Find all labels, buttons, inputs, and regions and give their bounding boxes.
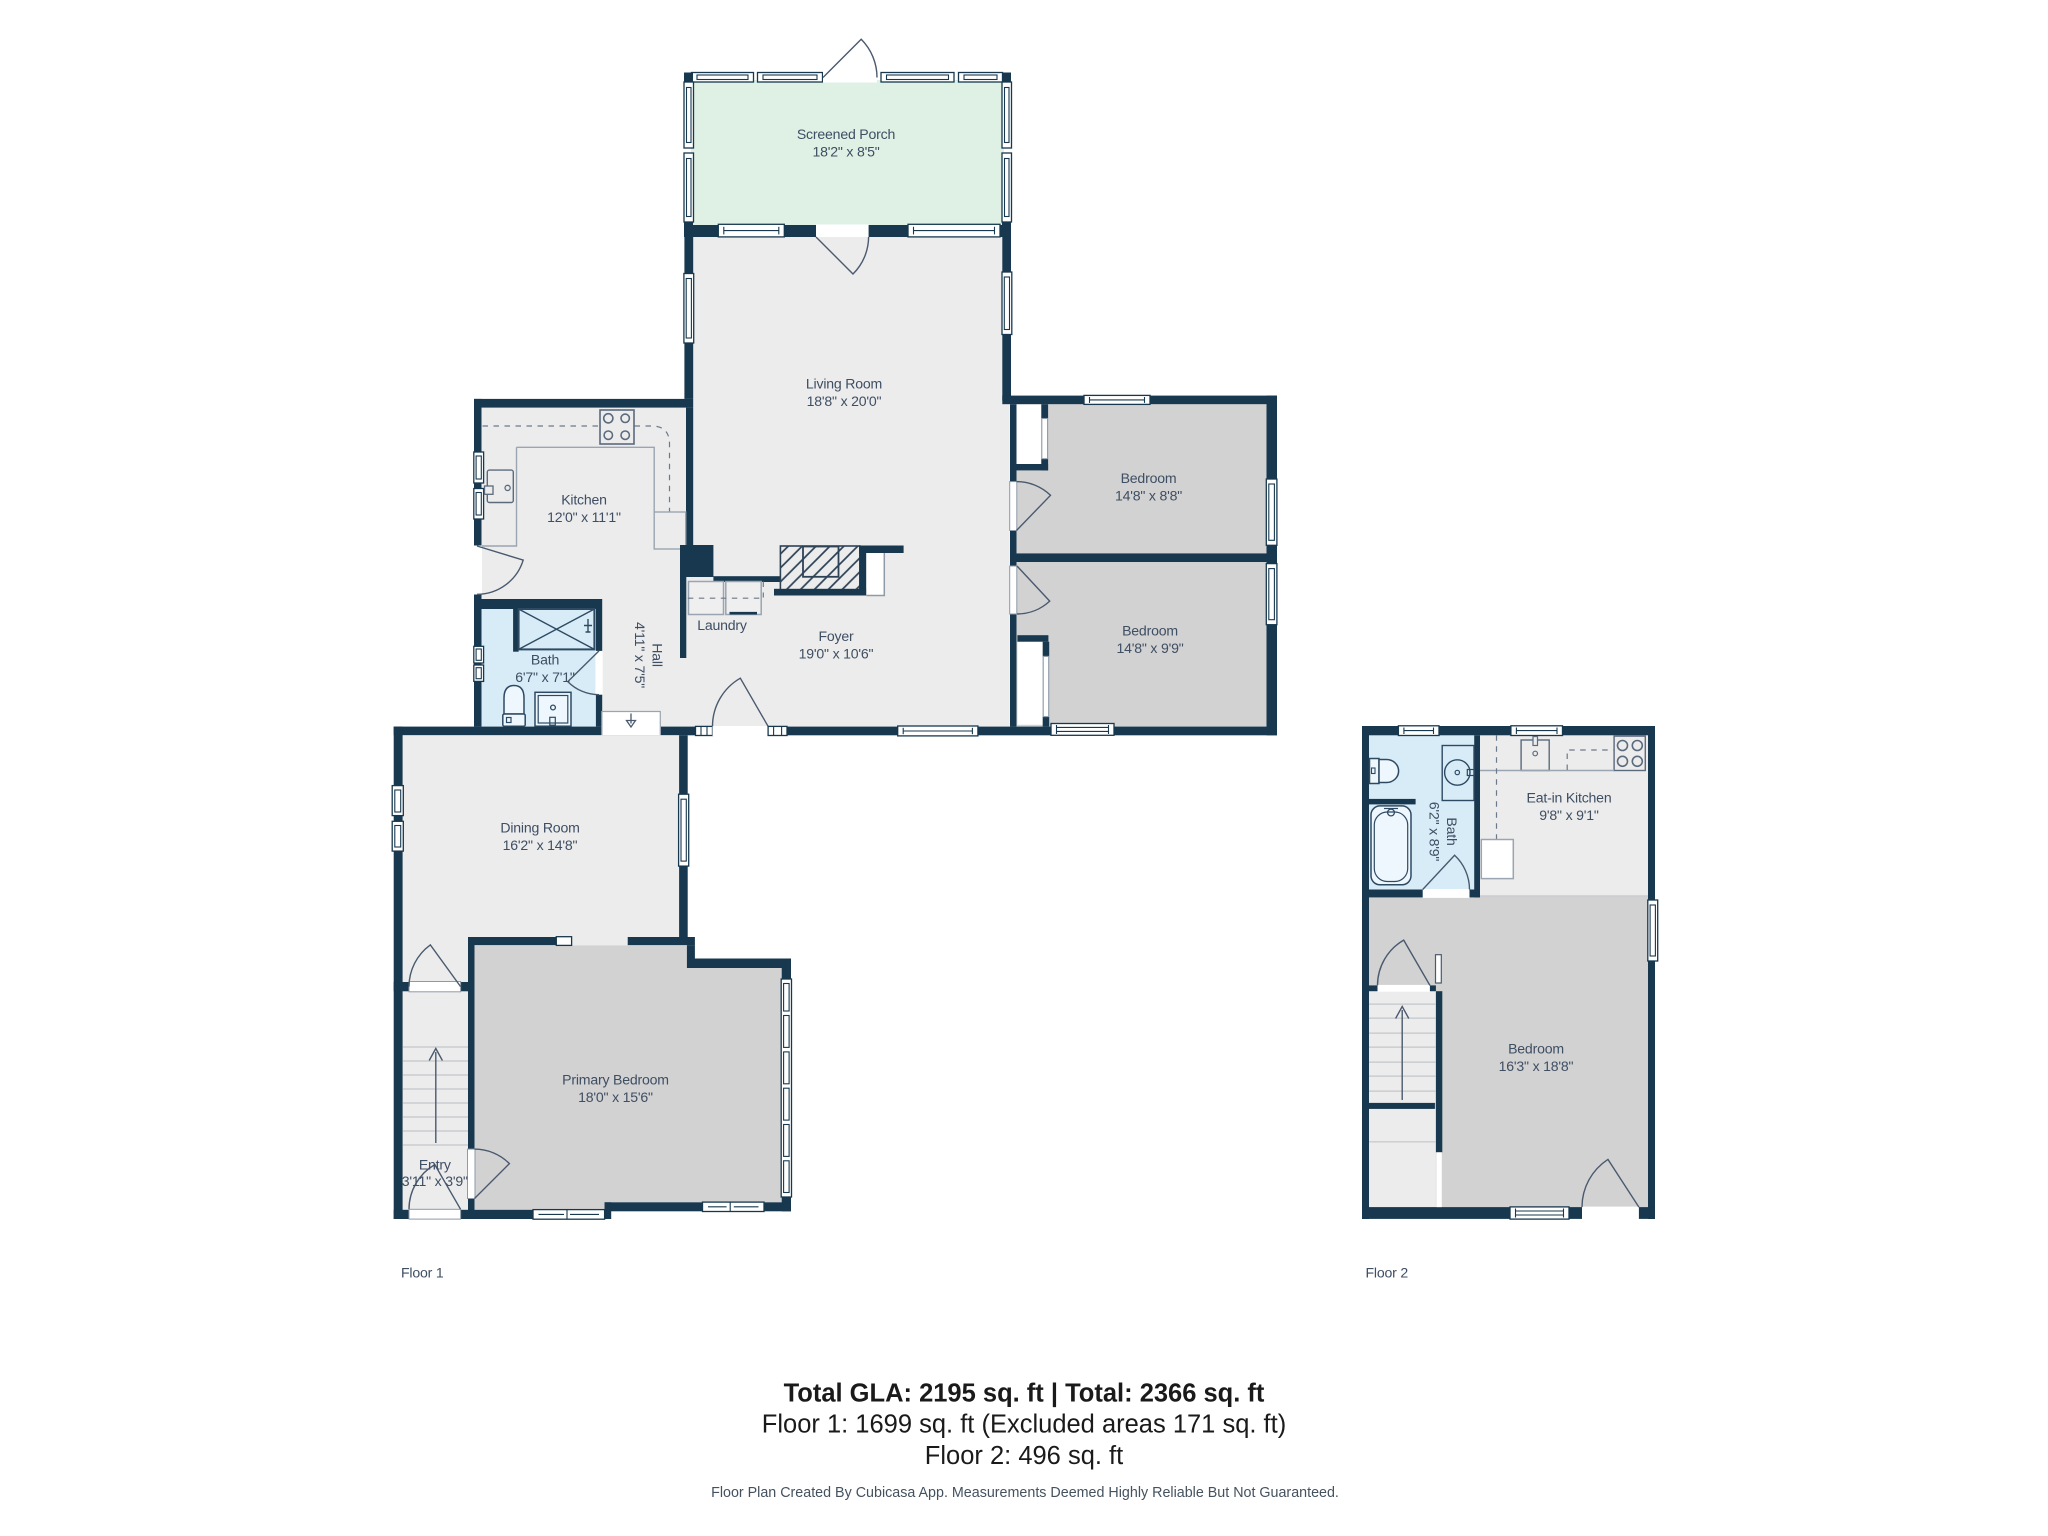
svg-text:Bedroom: Bedroom — [1122, 623, 1178, 639]
svg-text:Floor Plan Created By Cubicasa: Floor Plan Created By Cubicasa App. Meas… — [711, 1485, 1339, 1501]
svg-text:Floor 2: 496 sq. ft: Floor 2: 496 sq. ft — [925, 1442, 1123, 1470]
svg-text:Living Room: Living Room — [806, 376, 882, 392]
svg-text:18'2" x 8'5": 18'2" x 8'5" — [812, 144, 879, 160]
svg-text:Primary Bedroom: Primary Bedroom — [562, 1072, 669, 1088]
svg-text:Kitchen: Kitchen — [561, 492, 607, 508]
svg-text:Hall: Hall — [650, 643, 666, 667]
svg-text:Floor 2: Floor 2 — [1366, 1265, 1409, 1281]
svg-text:19'0" x 10'6": 19'0" x 10'6" — [799, 646, 874, 662]
svg-text:18'8" x 20'0": 18'8" x 20'0" — [807, 393, 882, 409]
svg-text:Eat-in Kitchen: Eat-in Kitchen — [1527, 790, 1612, 806]
svg-text:Bath: Bath — [531, 652, 559, 668]
svg-text:6'7" x 7'1": 6'7" x 7'1" — [515, 669, 575, 685]
svg-text:Total GLA: 2195 sq. ft | Total: Total GLA: 2195 sq. ft | Total: 2366 sq.… — [784, 1380, 1265, 1408]
svg-text:Floor 1: Floor 1 — [401, 1265, 444, 1281]
svg-text:16'3" x 18'8": 16'3" x 18'8" — [1499, 1058, 1574, 1074]
svg-text:Bedroom: Bedroom — [1508, 1041, 1564, 1057]
svg-text:4'11" x 7'5": 4'11" x 7'5" — [632, 622, 648, 688]
svg-text:14'8" x 9'9": 14'8" x 9'9" — [1116, 640, 1183, 656]
svg-text:Floor 1: 1699 sq. ft (Excluded: Floor 1: 1699 sq. ft (Excluded areas 171… — [762, 1411, 1286, 1439]
svg-text:3'11" x 3'9": 3'11" x 3'9" — [402, 1173, 468, 1189]
svg-text:16'2" x 14'8": 16'2" x 14'8" — [503, 837, 578, 853]
svg-text:Entry: Entry — [419, 1157, 452, 1173]
svg-text:9'8" x 9'1": 9'8" x 9'1" — [1539, 807, 1599, 823]
svg-text:Bedroom: Bedroom — [1121, 470, 1177, 486]
svg-text:14'8" x 8'8": 14'8" x 8'8" — [1115, 488, 1182, 504]
svg-text:Bath: Bath — [1444, 817, 1460, 845]
svg-text:Dining Room: Dining Room — [500, 820, 579, 836]
svg-text:Foyer: Foyer — [818, 628, 854, 644]
svg-text:Screened Porch: Screened Porch — [797, 126, 895, 142]
svg-text:12'0" x 11'1": 12'0" x 11'1" — [547, 509, 621, 525]
svg-text:Laundry: Laundry — [697, 617, 748, 633]
svg-text:18'0" x 15'6": 18'0" x 15'6" — [578, 1089, 653, 1105]
svg-text:6'2" x 8'9": 6'2" x 8'9" — [1427, 802, 1443, 862]
